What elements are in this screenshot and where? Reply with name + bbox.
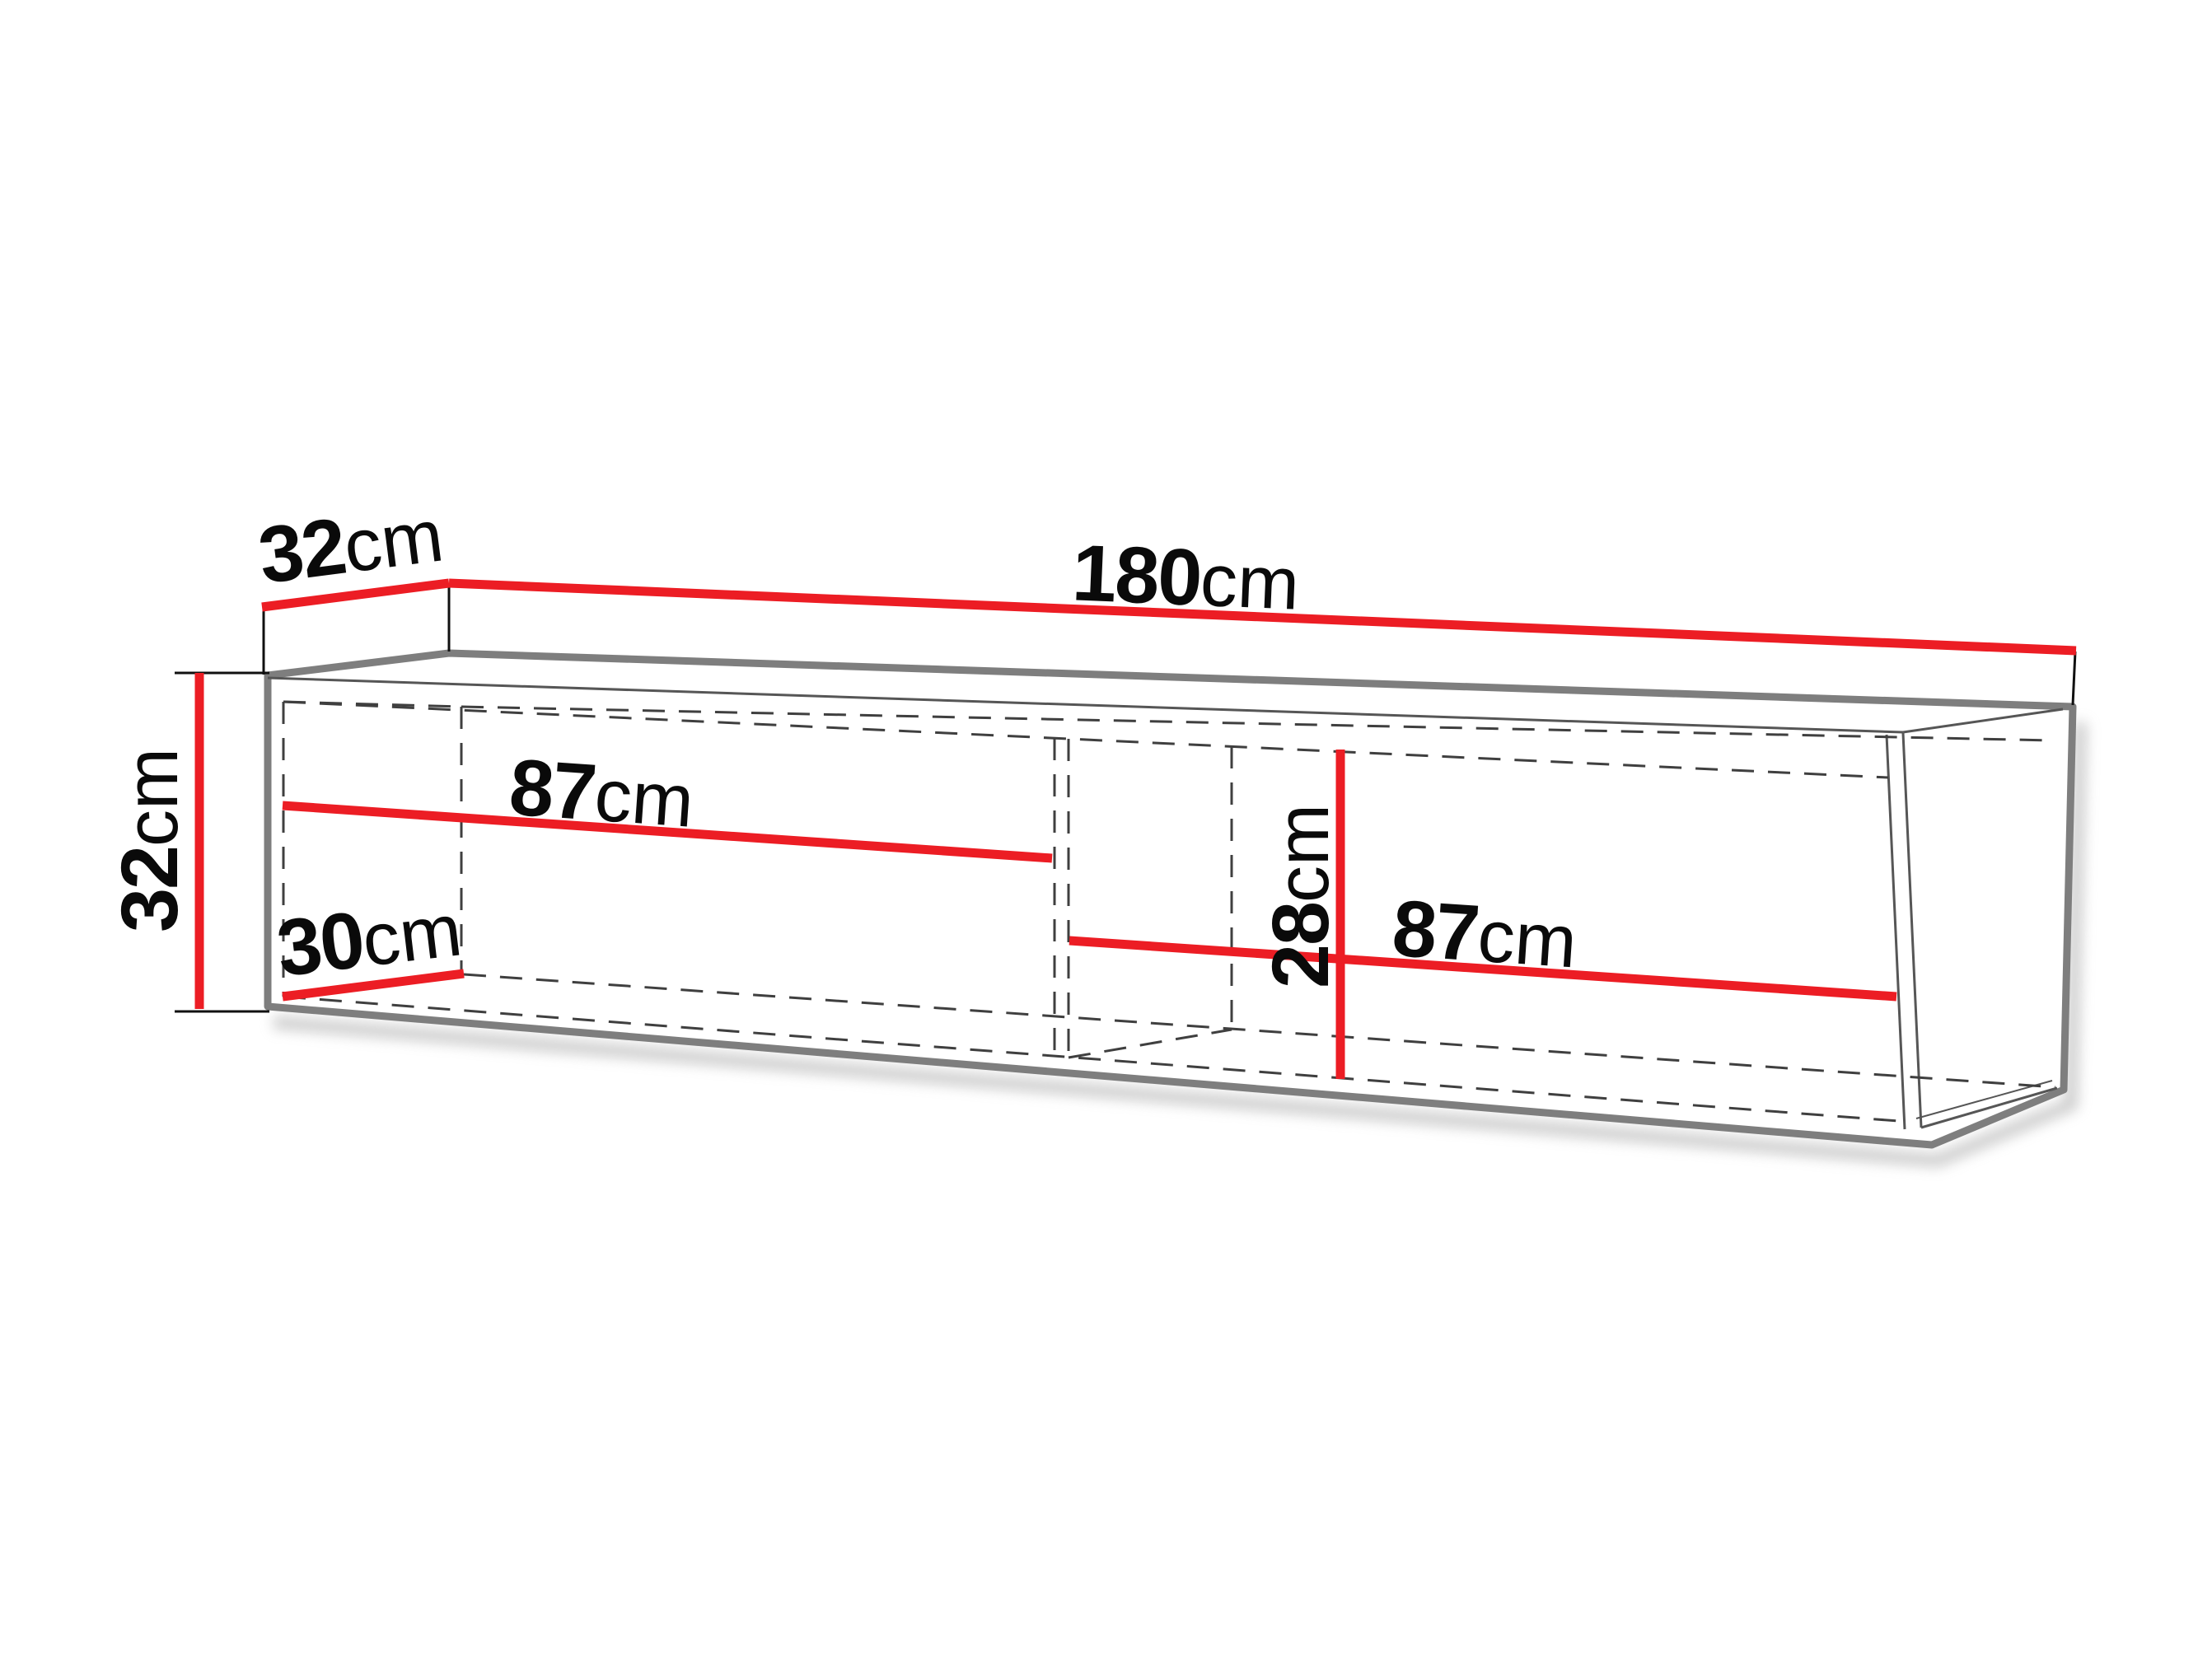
- cabinet-dimension-drawing: 32cm 180cm 32cm 87cm 30cm 28cm 87cm: [0, 0, 2212, 1658]
- dimension-diagram: 32cm 180cm 32cm 87cm 30cm 28cm 87cm: [0, 0, 2212, 1658]
- left-compartment-unit: cm: [592, 754, 697, 843]
- interior-depth-value: 30: [272, 894, 367, 994]
- interior-height-dimension-label: 28cm: [1256, 804, 1345, 988]
- right-compartment-value: 87: [1390, 883, 1481, 978]
- cabinet-body-outline: [268, 653, 2073, 1145]
- depth-unit: cm: [339, 494, 448, 588]
- height-unit: cm: [111, 748, 194, 847]
- height-value: 32: [105, 847, 194, 932]
- interior-depth-unit: cm: [358, 889, 466, 983]
- width-value: 180: [1070, 527, 1202, 622]
- left-compartment-value: 87: [507, 741, 598, 837]
- width-unit: cm: [1199, 539, 1301, 626]
- width-dimension-label: 180cm: [1070, 527, 1301, 626]
- width-dim-right-extension: [2073, 652, 2075, 705]
- right-compartment-unit: cm: [1475, 895, 1579, 984]
- interior-height-value: 28: [1256, 903, 1345, 988]
- depth-value: 32: [254, 501, 350, 600]
- interior-height-unit: cm: [1262, 804, 1345, 903]
- height-dimension-label: 32cm: [105, 748, 194, 932]
